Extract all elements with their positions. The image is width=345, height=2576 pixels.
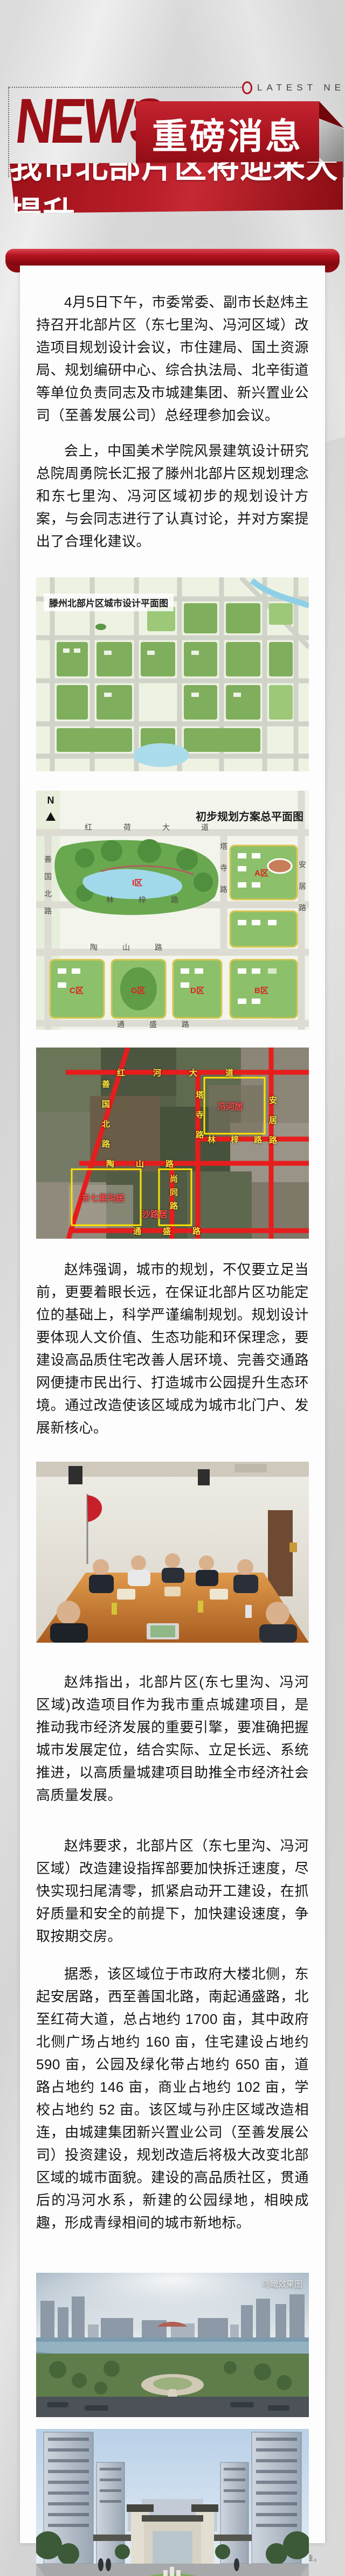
road-label-vertical: 塔寺路: [194, 1091, 205, 1150]
zone-label: D区: [190, 985, 204, 996]
paragraph: 赵炜要求，北部片区（东七里沟、冯河区域）改造建设指挥部要加快拆迁速度，尽快实现扫…: [36, 1834, 309, 1947]
meeting-photo-image: [36, 1462, 309, 1643]
aerial-photo-image: 红河大道 善国北路 林梓路 陶山路 通盛路 塔寺路 尚同路 安居路 冯河居 沙路…: [36, 1048, 309, 1239]
road-label: 通盛路: [117, 1019, 214, 1030]
road-label: 陶山路: [106, 1158, 195, 1169]
map-caption: 初步规划方案总平面图: [196, 808, 303, 823]
zone-label: A区: [254, 867, 268, 878]
zone-label: G区: [131, 985, 146, 996]
latest-news-label: LATEST NEWS: [257, 82, 345, 93]
zone-label: C区: [70, 985, 84, 996]
road-label-vertical: 安居路: [297, 861, 308, 925]
news-poster-page: LATEST NEWS NEWS 重磅消息 我市北部片区将迎来大提升 4月5日下…: [0, 0, 345, 2576]
headline-banner: 我市北部片区将迎来大提升: [10, 162, 343, 213]
article-body: 4月5日下午，市委常委、副市长赵炜主持召开北部片区（东七里沟、冯河区域）改造项目…: [20, 257, 325, 2576]
render2-art: [36, 2429, 309, 2576]
area-label: 东七里沟居: [81, 1191, 125, 1204]
entrance-rendering-image: 效果图: [36, 2429, 309, 2576]
map-caption: 滕州北部片区城市设计平面图: [44, 594, 174, 611]
rendering-watermark: 鸟瞰效果图: [262, 2278, 302, 2289]
headline-badge: 重磅消息: [136, 101, 319, 166]
road-label-vertical: 尚同路: [168, 1175, 179, 1215]
road-label-vertical: 安居路: [267, 1096, 278, 1156]
road-label: 陶山路: [90, 942, 187, 953]
area-label: 冯河居: [217, 1099, 243, 1112]
render1-art: [36, 2273, 309, 2417]
article-card: 4月5日下午，市委常委、副市长赵炜主持召开北部片区（东七里沟、冯河区域）改造项目…: [20, 257, 325, 2543]
red-bar-divider: [5, 249, 340, 266]
road-label: 林梓路: [106, 895, 203, 905]
dotted-divider-vertical: [8, 87, 9, 177]
road-label-vertical: 善国北路: [43, 855, 53, 924]
road-label-vertical: 塔寺路: [218, 842, 229, 907]
paragraph: 赵炜强调，城市的规划，不仅要立足当前，更要着眼长远，在保证北部片区功能定位的基础…: [36, 1258, 309, 1439]
aerial-rendering-image: 鸟瞰效果图: [36, 2273, 309, 2417]
zone-label: I区: [132, 877, 142, 888]
urban-design-plan-image: 滕州北部片区城市设计平面图: [36, 577, 309, 771]
paragraph: 会上，中国美术学院风景建筑设计研究总院周勇院长汇报了滕州北部片区规划理念和东七里…: [36, 439, 309, 553]
paragraph: 赵炜指出，北部片区(东七里沟、冯河区域)改造项目作为我市重点城建项目，是推动我市…: [36, 1671, 309, 1806]
north-arrow: N: [45, 795, 57, 821]
master-plan-image: N 初步规划方案总平面图 红荷大道 林梓路 陶山路 通盛路 塔寺路 安居路 善国…: [36, 791, 309, 1030]
circle-icon: [242, 81, 252, 94]
paragraph: 据悉，该区域位于市政府大楼北侧，东起安居路，西至善国北路，南起通盛路，北至红荷大…: [36, 1963, 309, 2234]
area-label: 沙路居: [142, 1207, 168, 1220]
zone-label: B区: [254, 985, 268, 996]
road-label: 通盛路: [133, 1225, 222, 1237]
paragraph: 4月5日下午，市委常委、副市长赵炜主持召开北部片区（东七里沟、冯河区域）改造项目…: [36, 291, 309, 427]
meeting-art: [36, 1462, 309, 1643]
headline-badge-label: 重磅消息: [152, 108, 303, 159]
road-label: 红河大道: [117, 1067, 261, 1078]
road-label: 红荷大道: [85, 822, 240, 833]
road-label-diagonal: 善国北路: [100, 1080, 111, 1160]
